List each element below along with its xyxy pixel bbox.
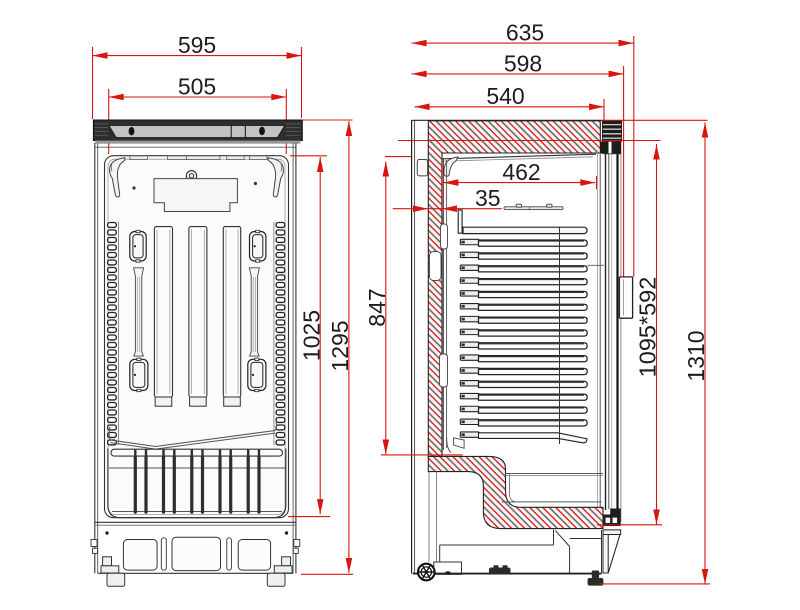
svg-text:462: 462 [502,159,540,185]
svg-text:540: 540 [486,83,524,109]
svg-text:1295: 1295 [327,320,353,371]
svg-text:595: 595 [178,32,216,58]
svg-text:635: 635 [506,20,544,46]
svg-text:1025: 1025 [298,310,324,361]
svg-text:847: 847 [364,288,390,326]
svg-text:35: 35 [475,185,501,211]
svg-text:598: 598 [504,50,542,76]
svg-text:1095*592: 1095*592 [635,277,661,378]
svg-text:505: 505 [178,73,216,99]
svg-text:1310: 1310 [683,330,709,381]
